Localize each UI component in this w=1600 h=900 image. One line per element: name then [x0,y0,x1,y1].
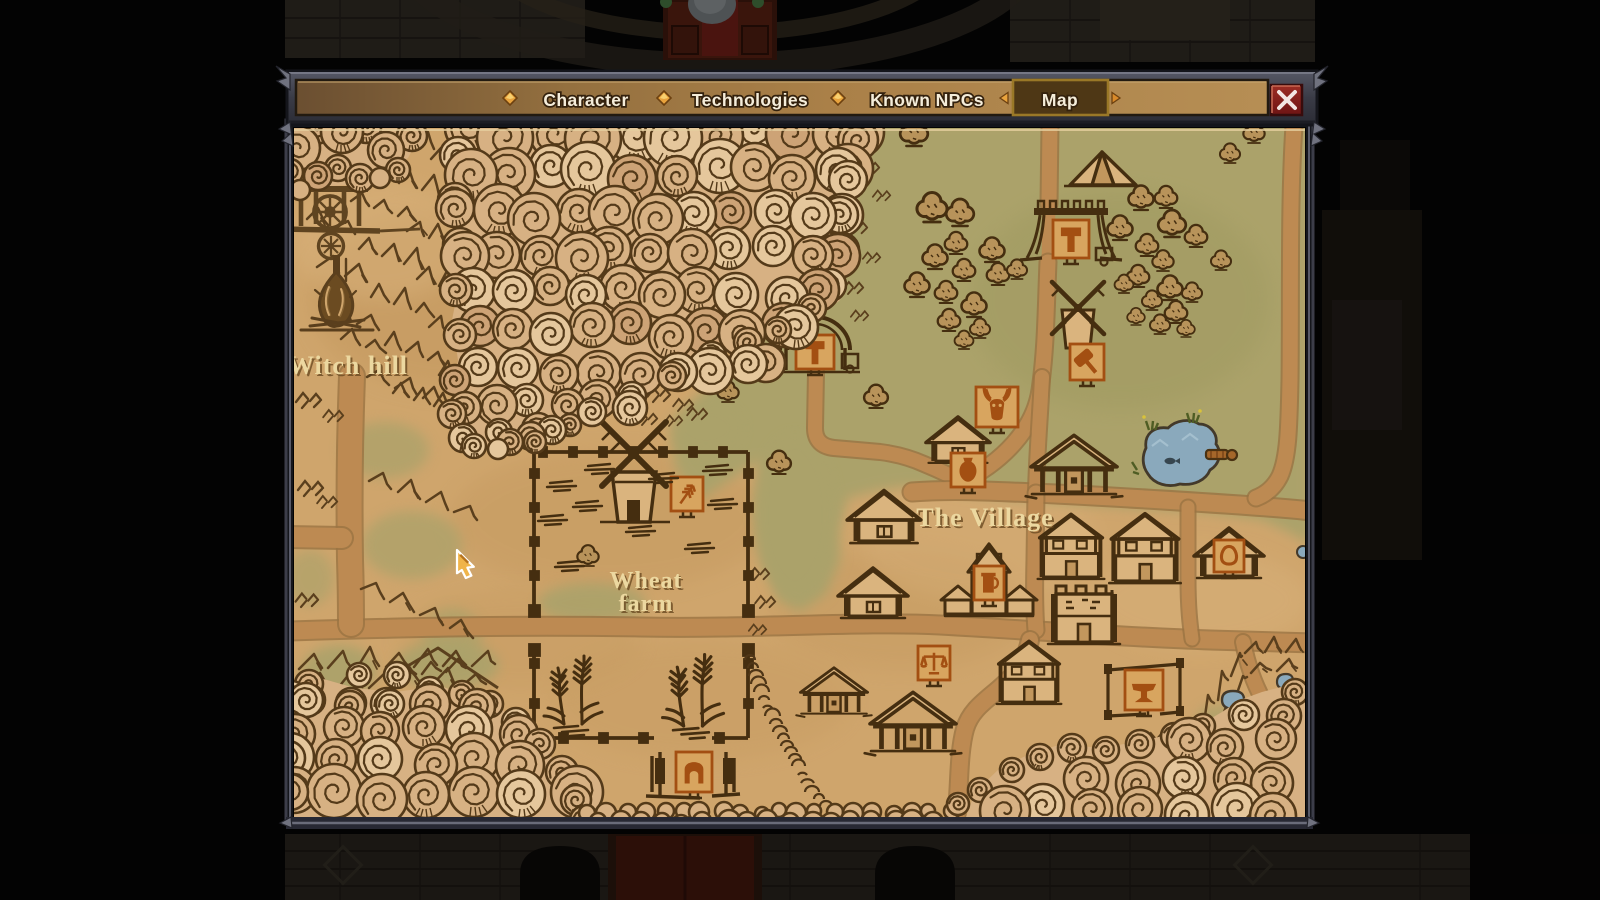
svg-text:The Village: The Village [916,503,1053,532]
svg-text:Map: Map [1042,90,1078,110]
svg-text:Witch hill: Witch hill [288,351,408,380]
svg-text:Character: Character [543,90,628,110]
svg-text:farm: farm [619,591,674,617]
svg-text:Technologies: Technologies [692,90,808,110]
svg-text:Known NPCs: Known NPCs [870,90,984,110]
